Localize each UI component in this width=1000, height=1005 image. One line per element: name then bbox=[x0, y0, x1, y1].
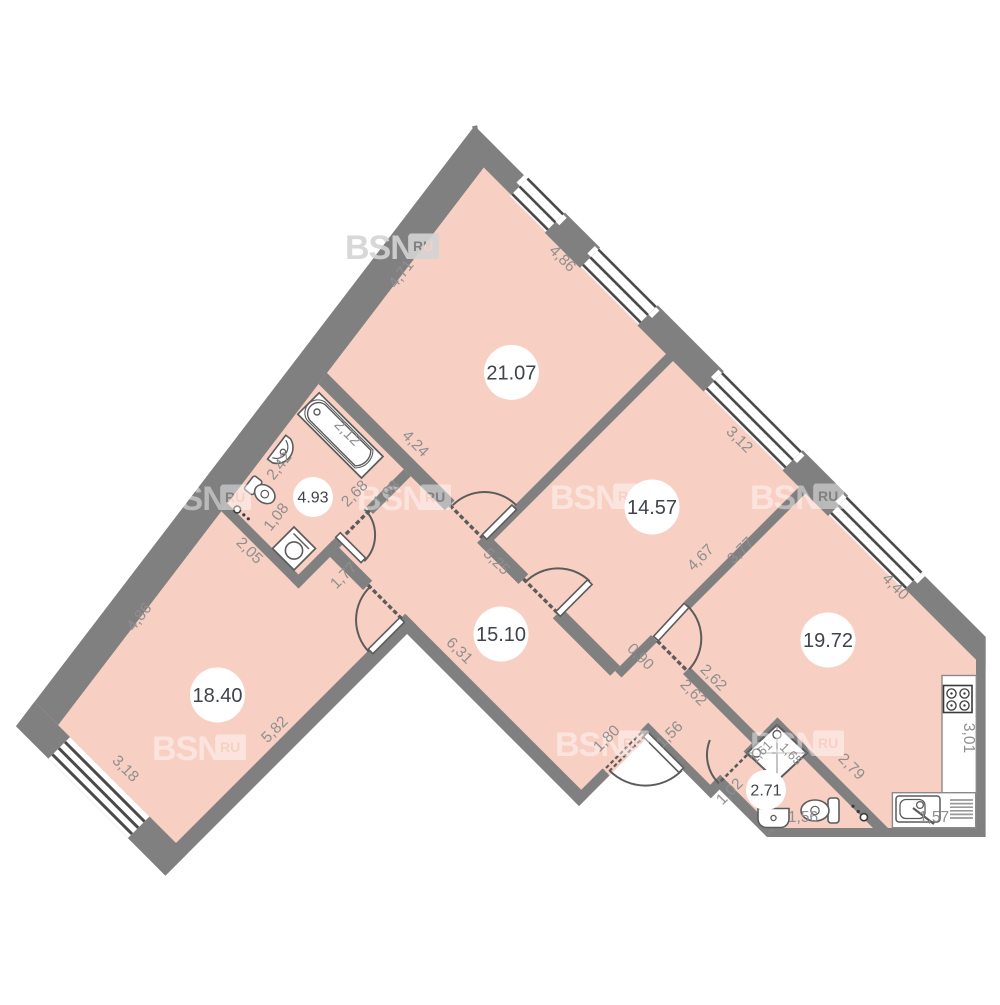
svg-text:14.57: 14.57 bbox=[627, 497, 677, 519]
svg-text:3,01: 3,01 bbox=[960, 723, 977, 753]
svg-text:1,57: 1,57 bbox=[919, 809, 949, 826]
svg-text:4.93: 4.93 bbox=[297, 490, 328, 507]
svg-text:15.10: 15.10 bbox=[476, 624, 526, 646]
svg-text:21.07: 21.07 bbox=[486, 362, 536, 384]
svg-text:2.71: 2.71 bbox=[750, 783, 781, 800]
svg-text:19.72: 19.72 bbox=[803, 630, 853, 652]
svg-text:18.40: 18.40 bbox=[192, 685, 242, 707]
svg-text:1,56: 1,56 bbox=[788, 809, 818, 826]
